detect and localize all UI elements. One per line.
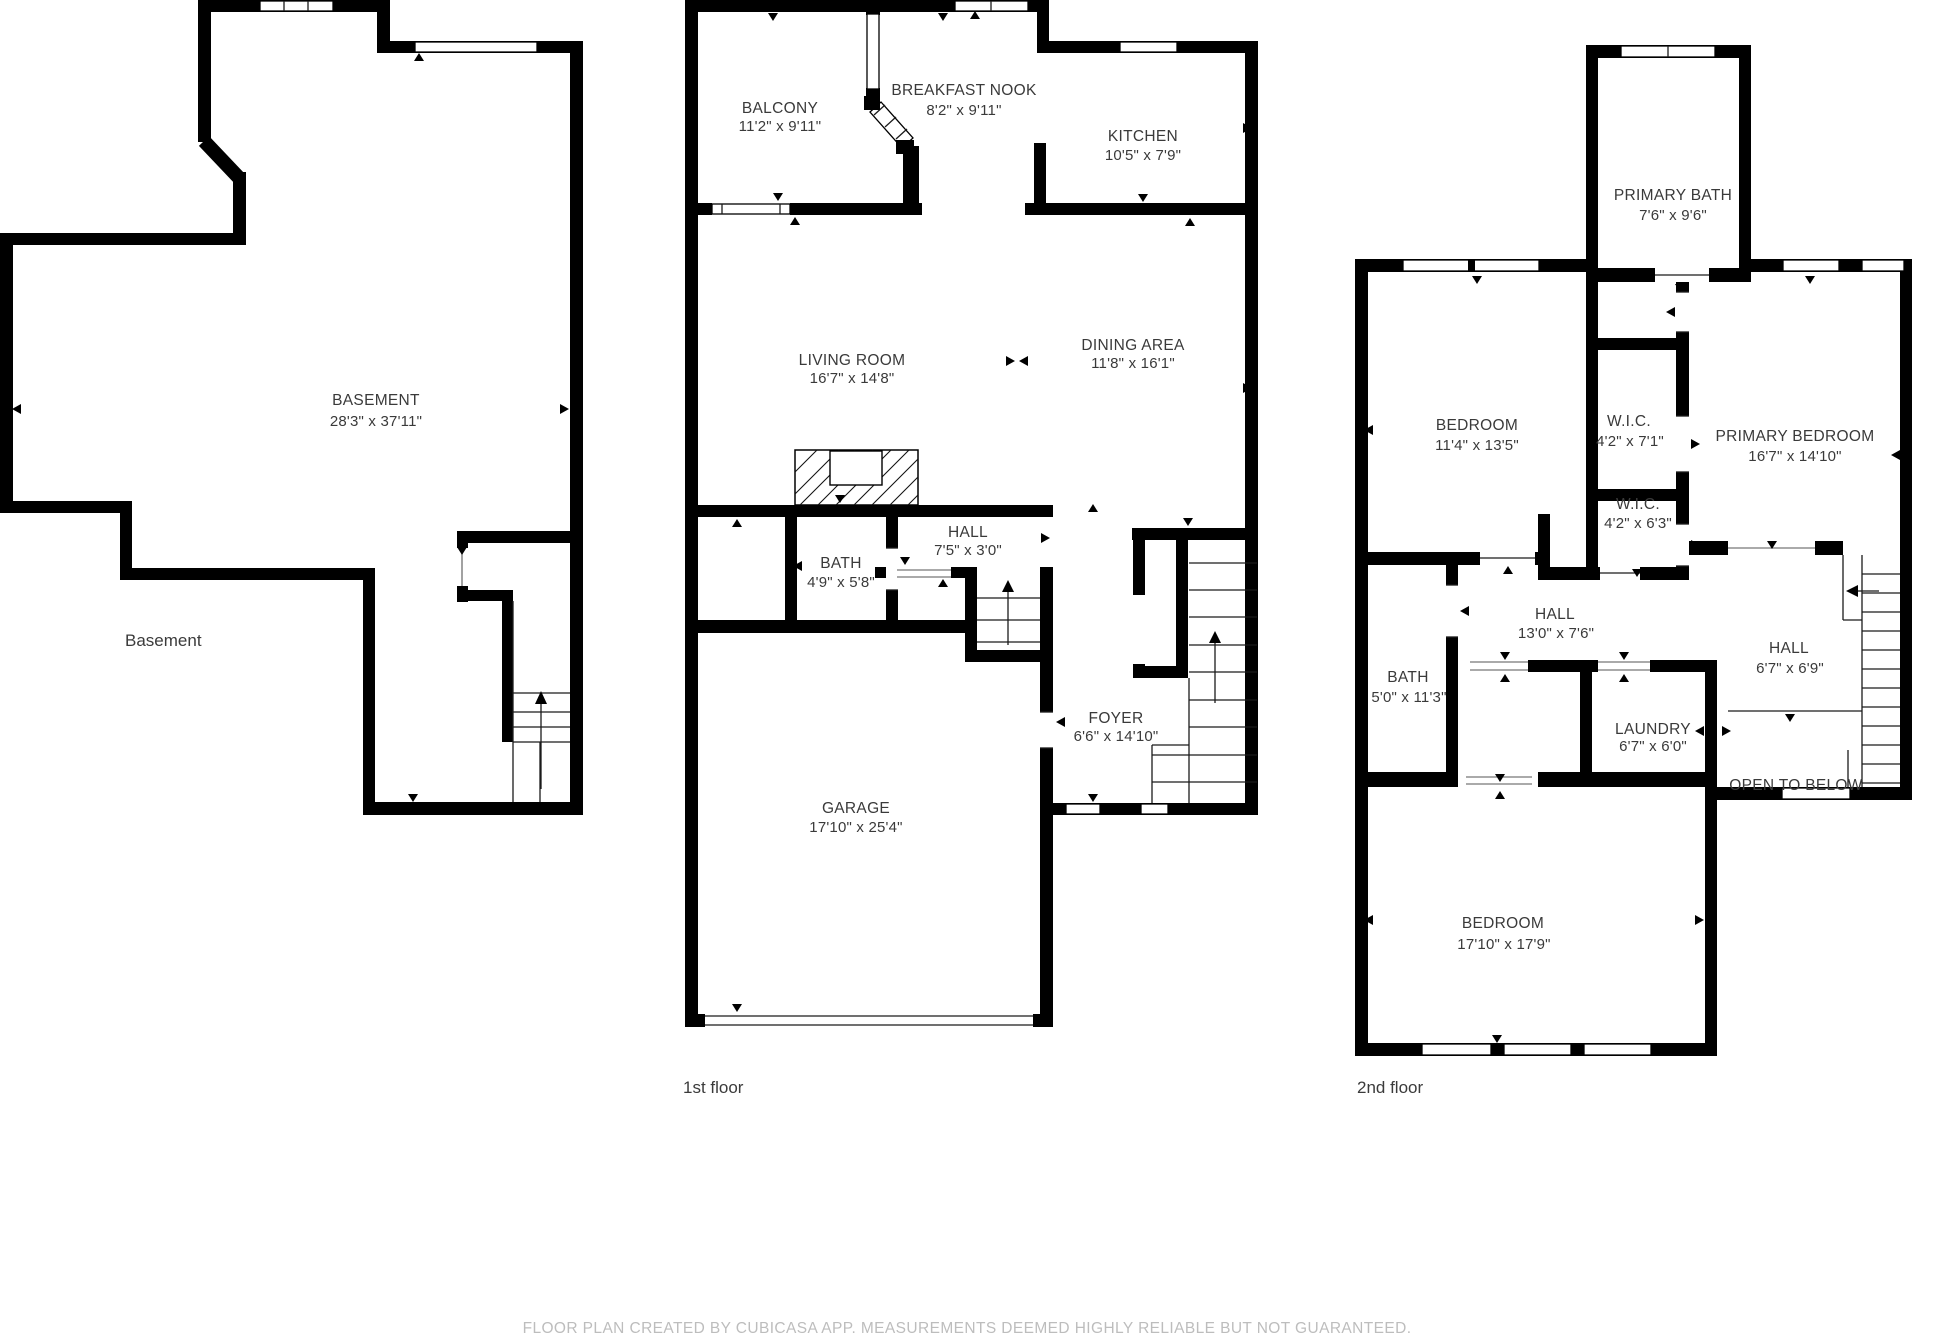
room-dims-hall-right: 6'7" x 6'9" (1756, 660, 1824, 677)
opening-marker-icon (560, 404, 569, 414)
room-dims-hall-center: 13'0" x 7'6" (1518, 625, 1594, 642)
basement-walls (0, 0, 583, 815)
room-label-kitchen: KITCHEN (1108, 128, 1178, 145)
stairs-up-arrow-icon (1209, 631, 1221, 643)
opening-marker-icon (457, 547, 467, 555)
fireplace (795, 450, 918, 505)
room-label-wic-2: W.I.C. (1616, 496, 1660, 513)
basement-plan: BASEMENT 28'3" x 37'11" Basement (0, 0, 583, 815)
room-label-bedroom: BEDROOM (1436, 417, 1518, 434)
basement-labels: BASEMENT 28'3" x 37'11" (330, 392, 422, 430)
room-dims-bedroom-2: 17'10" x 17'9" (1457, 936, 1550, 953)
caption-basement: Basement (125, 631, 202, 650)
room-dims-primary-bath: 7'6" x 9'6" (1639, 207, 1707, 224)
room-dims-kitchen: 10'5" x 7'9" (1105, 147, 1181, 164)
stairs-down-arrow-icon (1846, 585, 1858, 597)
floor-plan-canvas: BASEMENT 28'3" x 37'11" Basement (0, 0, 1934, 1337)
room-label-balcony: BALCONY (742, 100, 818, 117)
room-dims-wic-1: 4'2" x 7'1" (1596, 433, 1664, 450)
room-label-wic-1: W.I.C. (1607, 413, 1651, 430)
room-label-hall-right: HALL (1769, 640, 1809, 657)
room-label-bath: BATH (820, 555, 861, 572)
caption-second-floor: 2nd floor (1357, 1078, 1423, 1097)
second-floor-plan: PRIMARY BATH 7'6" x 9'6" BEDROOM 11'4" x… (1355, 45, 1912, 1097)
room-label-foyer: FOYER (1089, 710, 1144, 727)
room-dims-wic-2: 4'2" x 6'3" (1604, 515, 1672, 532)
room-dims-balcony: 11'2" x 9'11" (739, 118, 822, 135)
room-label-breakfast-nook: BREAKFAST NOOK (891, 82, 1037, 99)
room-dims-bath: 4'9" x 5'8" (807, 574, 875, 591)
first-floor-plan: BALCONY 11'2" x 9'11" BREAKFAST NOOK 8'2… (683, 0, 1258, 1097)
room-dims-garage: 17'10" x 25'4" (809, 819, 902, 836)
room-label-primary-bedroom: PRIMARY BEDROOM (1716, 428, 1875, 445)
room-label-dining-area: DINING AREA (1081, 337, 1185, 354)
basement-door-markers (12, 53, 569, 802)
footer-disclaimer: FLOOR PLAN CREATED BY CUBICASA APP. MEAS… (523, 1320, 1412, 1337)
stairs-up-arrow-icon (1002, 580, 1014, 592)
opening-marker-icon (408, 794, 418, 802)
room-label-basement: BASEMENT (332, 392, 420, 409)
room-dims-laundry: 6'7" x 6'0" (1619, 738, 1687, 755)
bay-window (864, 96, 914, 154)
room-label-laundry: LAUNDRY (1615, 721, 1691, 738)
room-dims-basement: 28'3" x 37'11" (330, 413, 422, 430)
room-label-hall-center: HALL (1535, 606, 1575, 623)
room-dims-foyer: 6'6" x 14'10" (1074, 728, 1159, 745)
opening-marker-icon (414, 53, 424, 61)
room-label-bath-2: BATH (1387, 669, 1428, 686)
room-dims-breakfast-nook: 8'2" x 9'11" (926, 102, 1001, 119)
room-dims-primary-bedroom: 16'7" x 14'10" (1748, 448, 1841, 465)
room-label-open-to-below: OPEN TO BELOW (1729, 777, 1862, 794)
room-dims-living-room: 16'7" x 14'8" (810, 370, 895, 387)
room-dims-bath-2: 5'0" x 11'3" (1371, 689, 1446, 706)
room-label-bedroom-2: BEDROOM (1462, 915, 1544, 932)
room-dims-dining-area: 11'8" x 16'1" (1091, 355, 1175, 372)
foyer-staircase (1152, 563, 1257, 803)
room-label-garage: GARAGE (822, 800, 890, 817)
garage-door (705, 1016, 1033, 1025)
room-label-primary-bath: PRIMARY BATH (1614, 187, 1732, 204)
floor-plan-page: BASEMENT 28'3" x 37'11" Basement (0, 0, 1934, 1337)
room-dims-hall: 7'5" x 3'0" (934, 542, 1002, 559)
room-label-hall: HALL (948, 524, 988, 541)
caption-first-floor: 1st floor (683, 1078, 744, 1097)
opening-marker-icon (12, 404, 21, 414)
room-label-living-room: LIVING ROOM (799, 352, 906, 369)
room-dims-bedroom: 11'4" x 13'5" (1435, 437, 1519, 454)
basement-staircase (462, 548, 570, 802)
hall-staircase (977, 580, 1040, 645)
second-floor-staircase (1843, 555, 1900, 787)
